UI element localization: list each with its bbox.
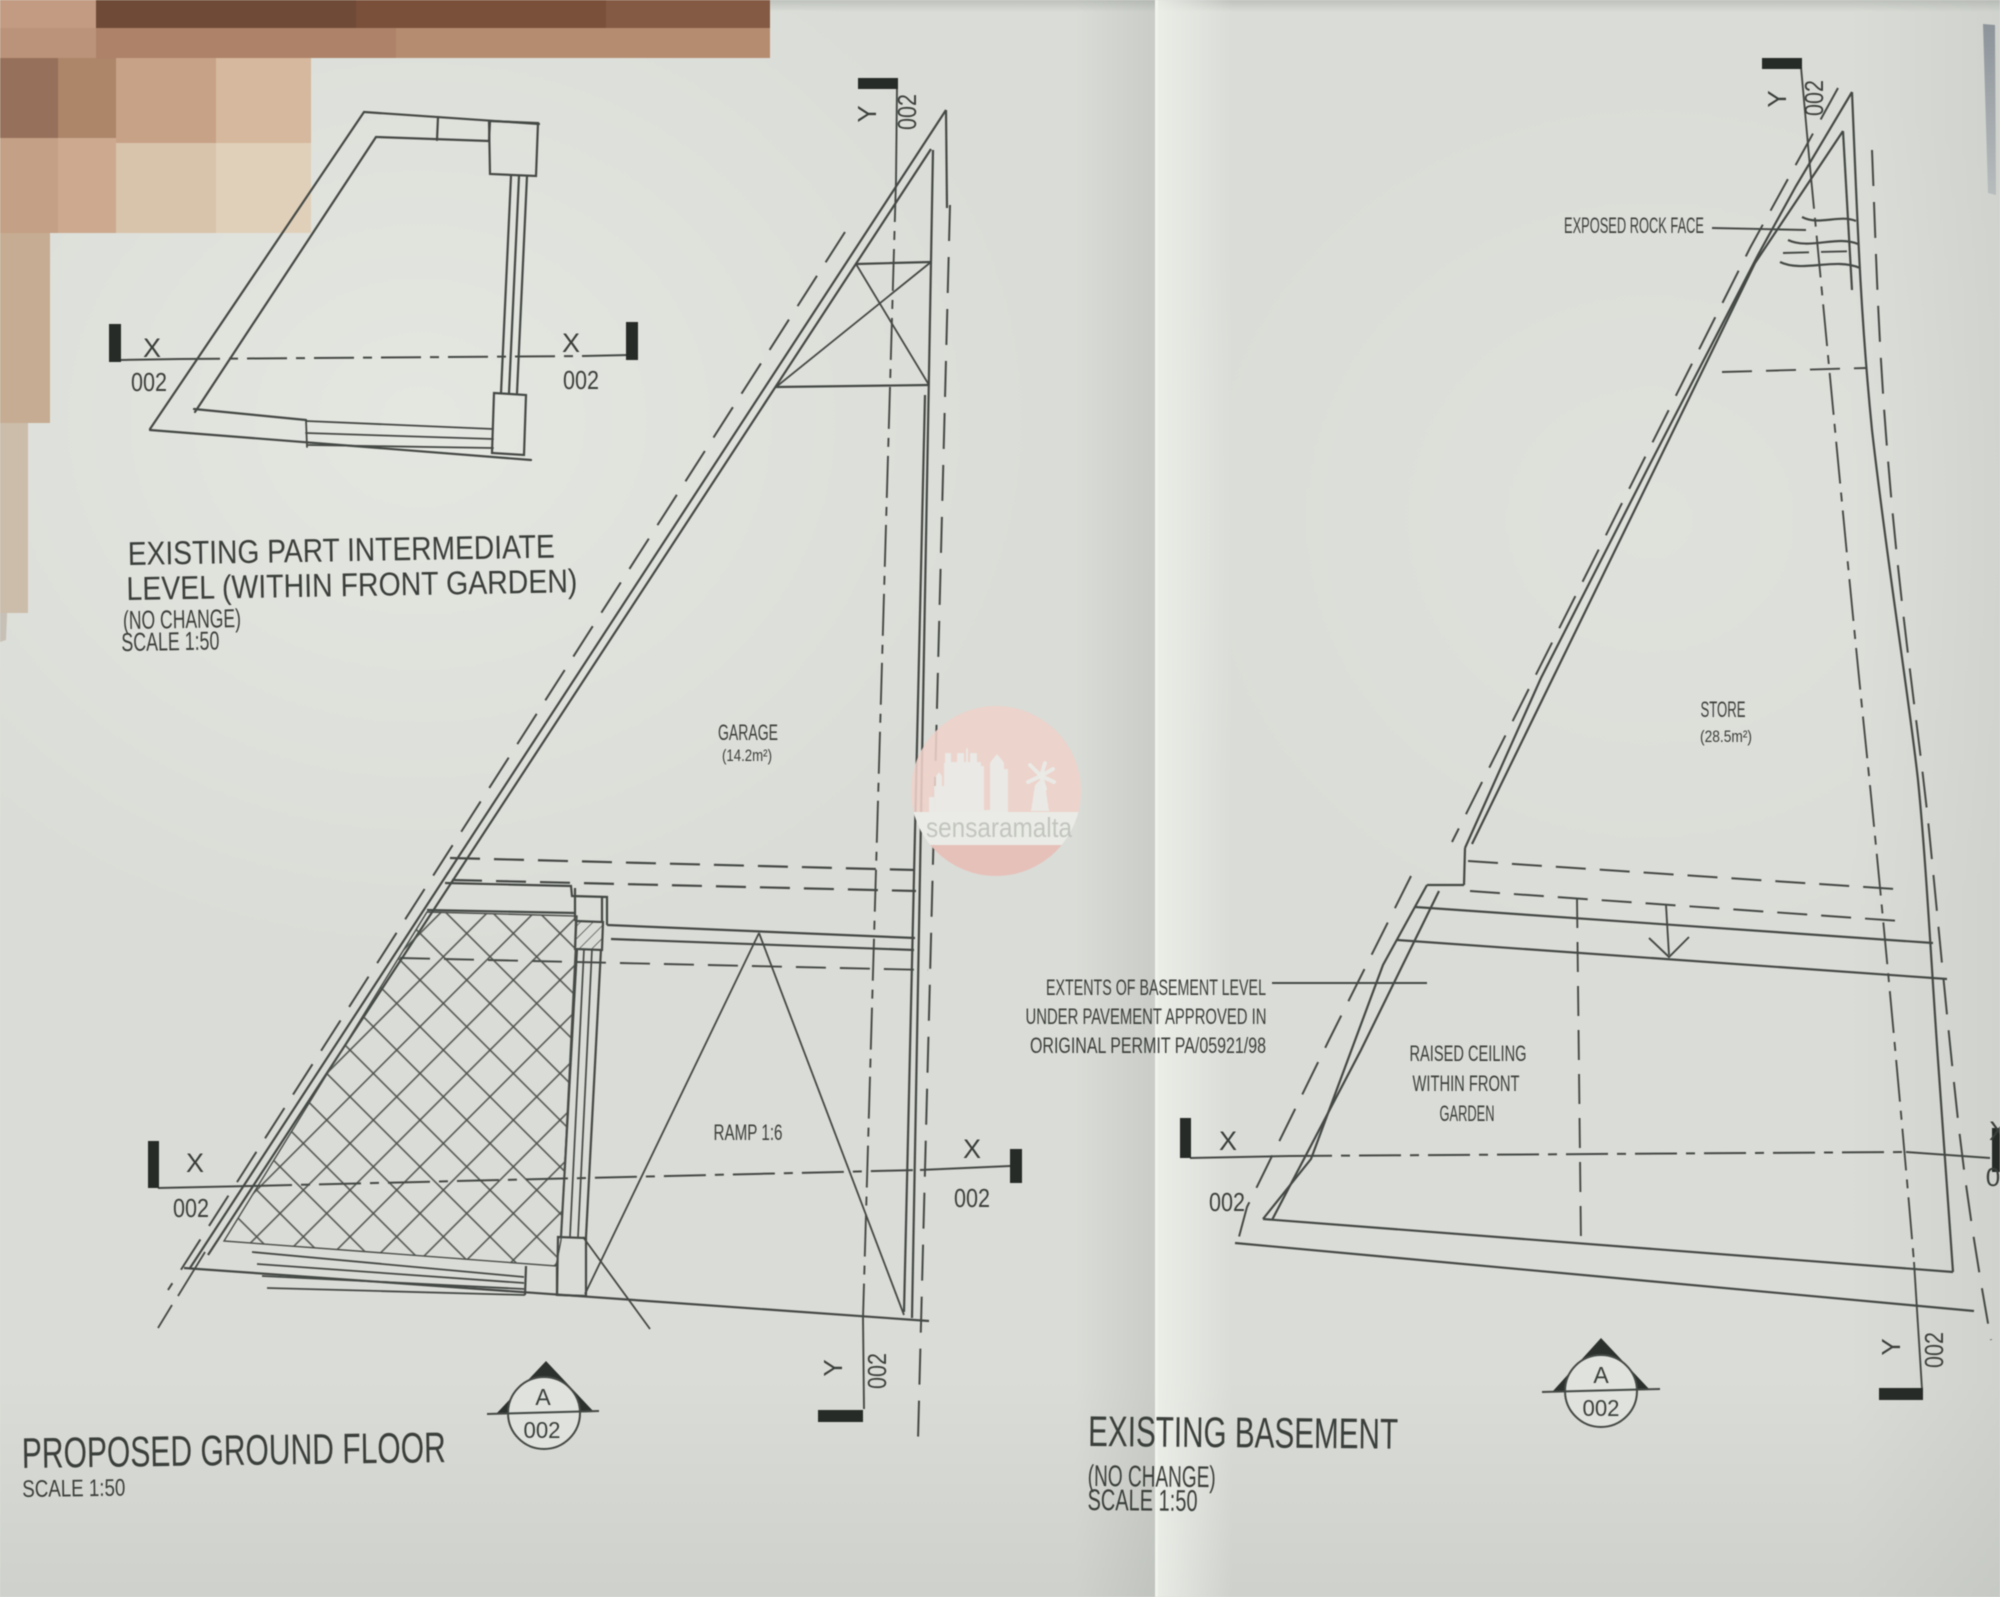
svg-text:002: 002 <box>892 94 922 130</box>
svg-text:002: 002 <box>1799 80 1829 116</box>
svg-text:0: 0 <box>1986 1162 2000 1192</box>
svg-text:ORIGINAL PERMIT PA/05921/98: ORIGINAL PERMIT PA/05921/98 <box>1030 1033 1266 1058</box>
svg-text:SCALE 1:50: SCALE 1:50 <box>22 1475 125 1503</box>
svg-text:(14.2m²): (14.2m²) <box>722 746 772 765</box>
svg-text:Y: Y <box>818 1359 848 1376</box>
svg-text:RAMP 1:6: RAMP 1:6 <box>714 1120 783 1145</box>
svg-text:EXTENTS OF BASEMENT LEVEL: EXTENTS OF BASEMENT LEVEL <box>1046 975 1266 1000</box>
svg-text:GARDEN: GARDEN <box>1440 1101 1495 1126</box>
svg-text:RAISED CEILING: RAISED CEILING <box>1410 1041 1527 1066</box>
svg-text:A: A <box>535 1384 551 1410</box>
svg-text:(28.5m²): (28.5m²) <box>1700 727 1752 746</box>
svg-text:002: 002 <box>563 365 599 395</box>
svg-text:002: 002 <box>131 367 167 397</box>
svg-text:Y: Y <box>1876 1338 1906 1355</box>
svg-text:002: 002 <box>524 1417 561 1443</box>
svg-text:Y: Y <box>1762 90 1792 107</box>
svg-text:002: 002 <box>862 1353 892 1389</box>
svg-text:A: A <box>1593 1362 1609 1388</box>
svg-text:X: X <box>1219 1126 1237 1156</box>
svg-text:002: 002 <box>954 1183 990 1213</box>
svg-text:Y: Y <box>852 105 882 122</box>
svg-text:X: X <box>963 1134 981 1164</box>
svg-text:SCALE 1:50: SCALE 1:50 <box>1087 1484 1197 1518</box>
svg-text:002: 002 <box>1583 1395 1620 1421</box>
svg-text:LEVEL (WITHIN FRONT GARDEN): LEVEL (WITHIN FRONT GARDEN) <box>126 562 578 607</box>
svg-text:SCALE 1:50: SCALE 1:50 <box>121 625 220 657</box>
svg-text:STORE: STORE <box>1701 697 1746 722</box>
svg-text:X: X <box>186 1148 204 1178</box>
svg-text:X: X <box>143 333 161 363</box>
svg-text:EXISTING BASEMENT: EXISTING BASEMENT <box>1088 1408 1398 1459</box>
svg-text:EXPOSED ROCK FACE: EXPOSED ROCK FACE <box>1564 213 1704 238</box>
svg-text:PROPOSED GROUND FLOOR: PROPOSED GROUND FLOOR <box>21 1424 446 1478</box>
svg-text:GARAGE: GARAGE <box>718 720 778 745</box>
svg-text:002: 002 <box>1209 1187 1245 1217</box>
svg-text:002: 002 <box>1919 1332 1949 1368</box>
svg-text:sensaramalta: sensaramalta <box>926 812 1072 843</box>
svg-text:X: X <box>562 328 580 358</box>
svg-text:X: X <box>1989 1116 2000 1146</box>
svg-text:UNDER PAVEMENT APPROVED IN: UNDER PAVEMENT APPROVED IN <box>1026 1004 1267 1029</box>
svg-text:002: 002 <box>173 1193 209 1223</box>
svg-text:WITHIN FRONT: WITHIN FRONT <box>1413 1071 1520 1096</box>
